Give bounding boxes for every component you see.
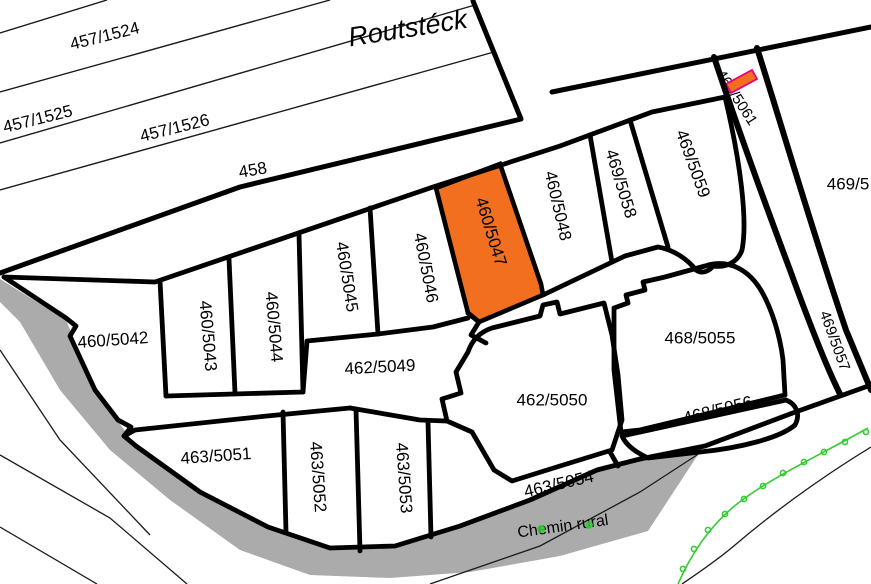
- parcel-label-463-5053: 463/5053: [392, 442, 416, 514]
- parcel-label-460-5045: 460/5045: [332, 240, 362, 313]
- parcel-label-468-5055: 468/5055: [665, 328, 736, 347]
- parcel-label-463-5051: 463/5051: [180, 444, 252, 468]
- green-marker-point: [863, 429, 868, 434]
- parcel-label-458: 458: [237, 158, 268, 182]
- place-name-label: Routstéck: [346, 4, 471, 53]
- parcel-label-460-5042: 460/5042: [77, 328, 149, 352]
- parcel-label-460-5046: 460/5046: [410, 231, 442, 304]
- green-survey-dot: [537, 525, 545, 533]
- green-marker-point: [705, 527, 710, 532]
- green-marker-point: [780, 470, 785, 475]
- parcel-label-457-1524: 457/1524: [68, 18, 141, 54]
- cadastral-map-canvas: 469/5061469/5057: [0, 0, 871, 584]
- parcel-label-463-5052: 463/5052: [306, 441, 330, 513]
- green-marker-point: [691, 546, 696, 551]
- parcel-label-460-5043: 460/5043: [195, 300, 220, 372]
- parcel-label-469-5058: 469/5058: [602, 147, 641, 220]
- parcel-label-460-5048: 460/5048: [541, 169, 575, 242]
- parcel-label-462-5050: 462/5050: [517, 390, 588, 409]
- parcel-label-469-5-clipped: 469/5: [827, 174, 870, 193]
- cadastral-map: 469/5061469/5057: [0, 0, 871, 584]
- green-marker-point: [680, 566, 685, 571]
- green-survey-dot: [585, 521, 593, 529]
- road-surface-chemin-rural: [0, 279, 703, 578]
- parcel-label-460-5044: 460/5044: [261, 291, 286, 363]
- parcel-label-462-5049: 462/5049: [344, 356, 416, 379]
- parcel-label-468-5056: 468/5056: [681, 392, 754, 428]
- green-marker-point: [842, 439, 847, 444]
- parcel-label-469-5059: 469/5059: [672, 127, 714, 200]
